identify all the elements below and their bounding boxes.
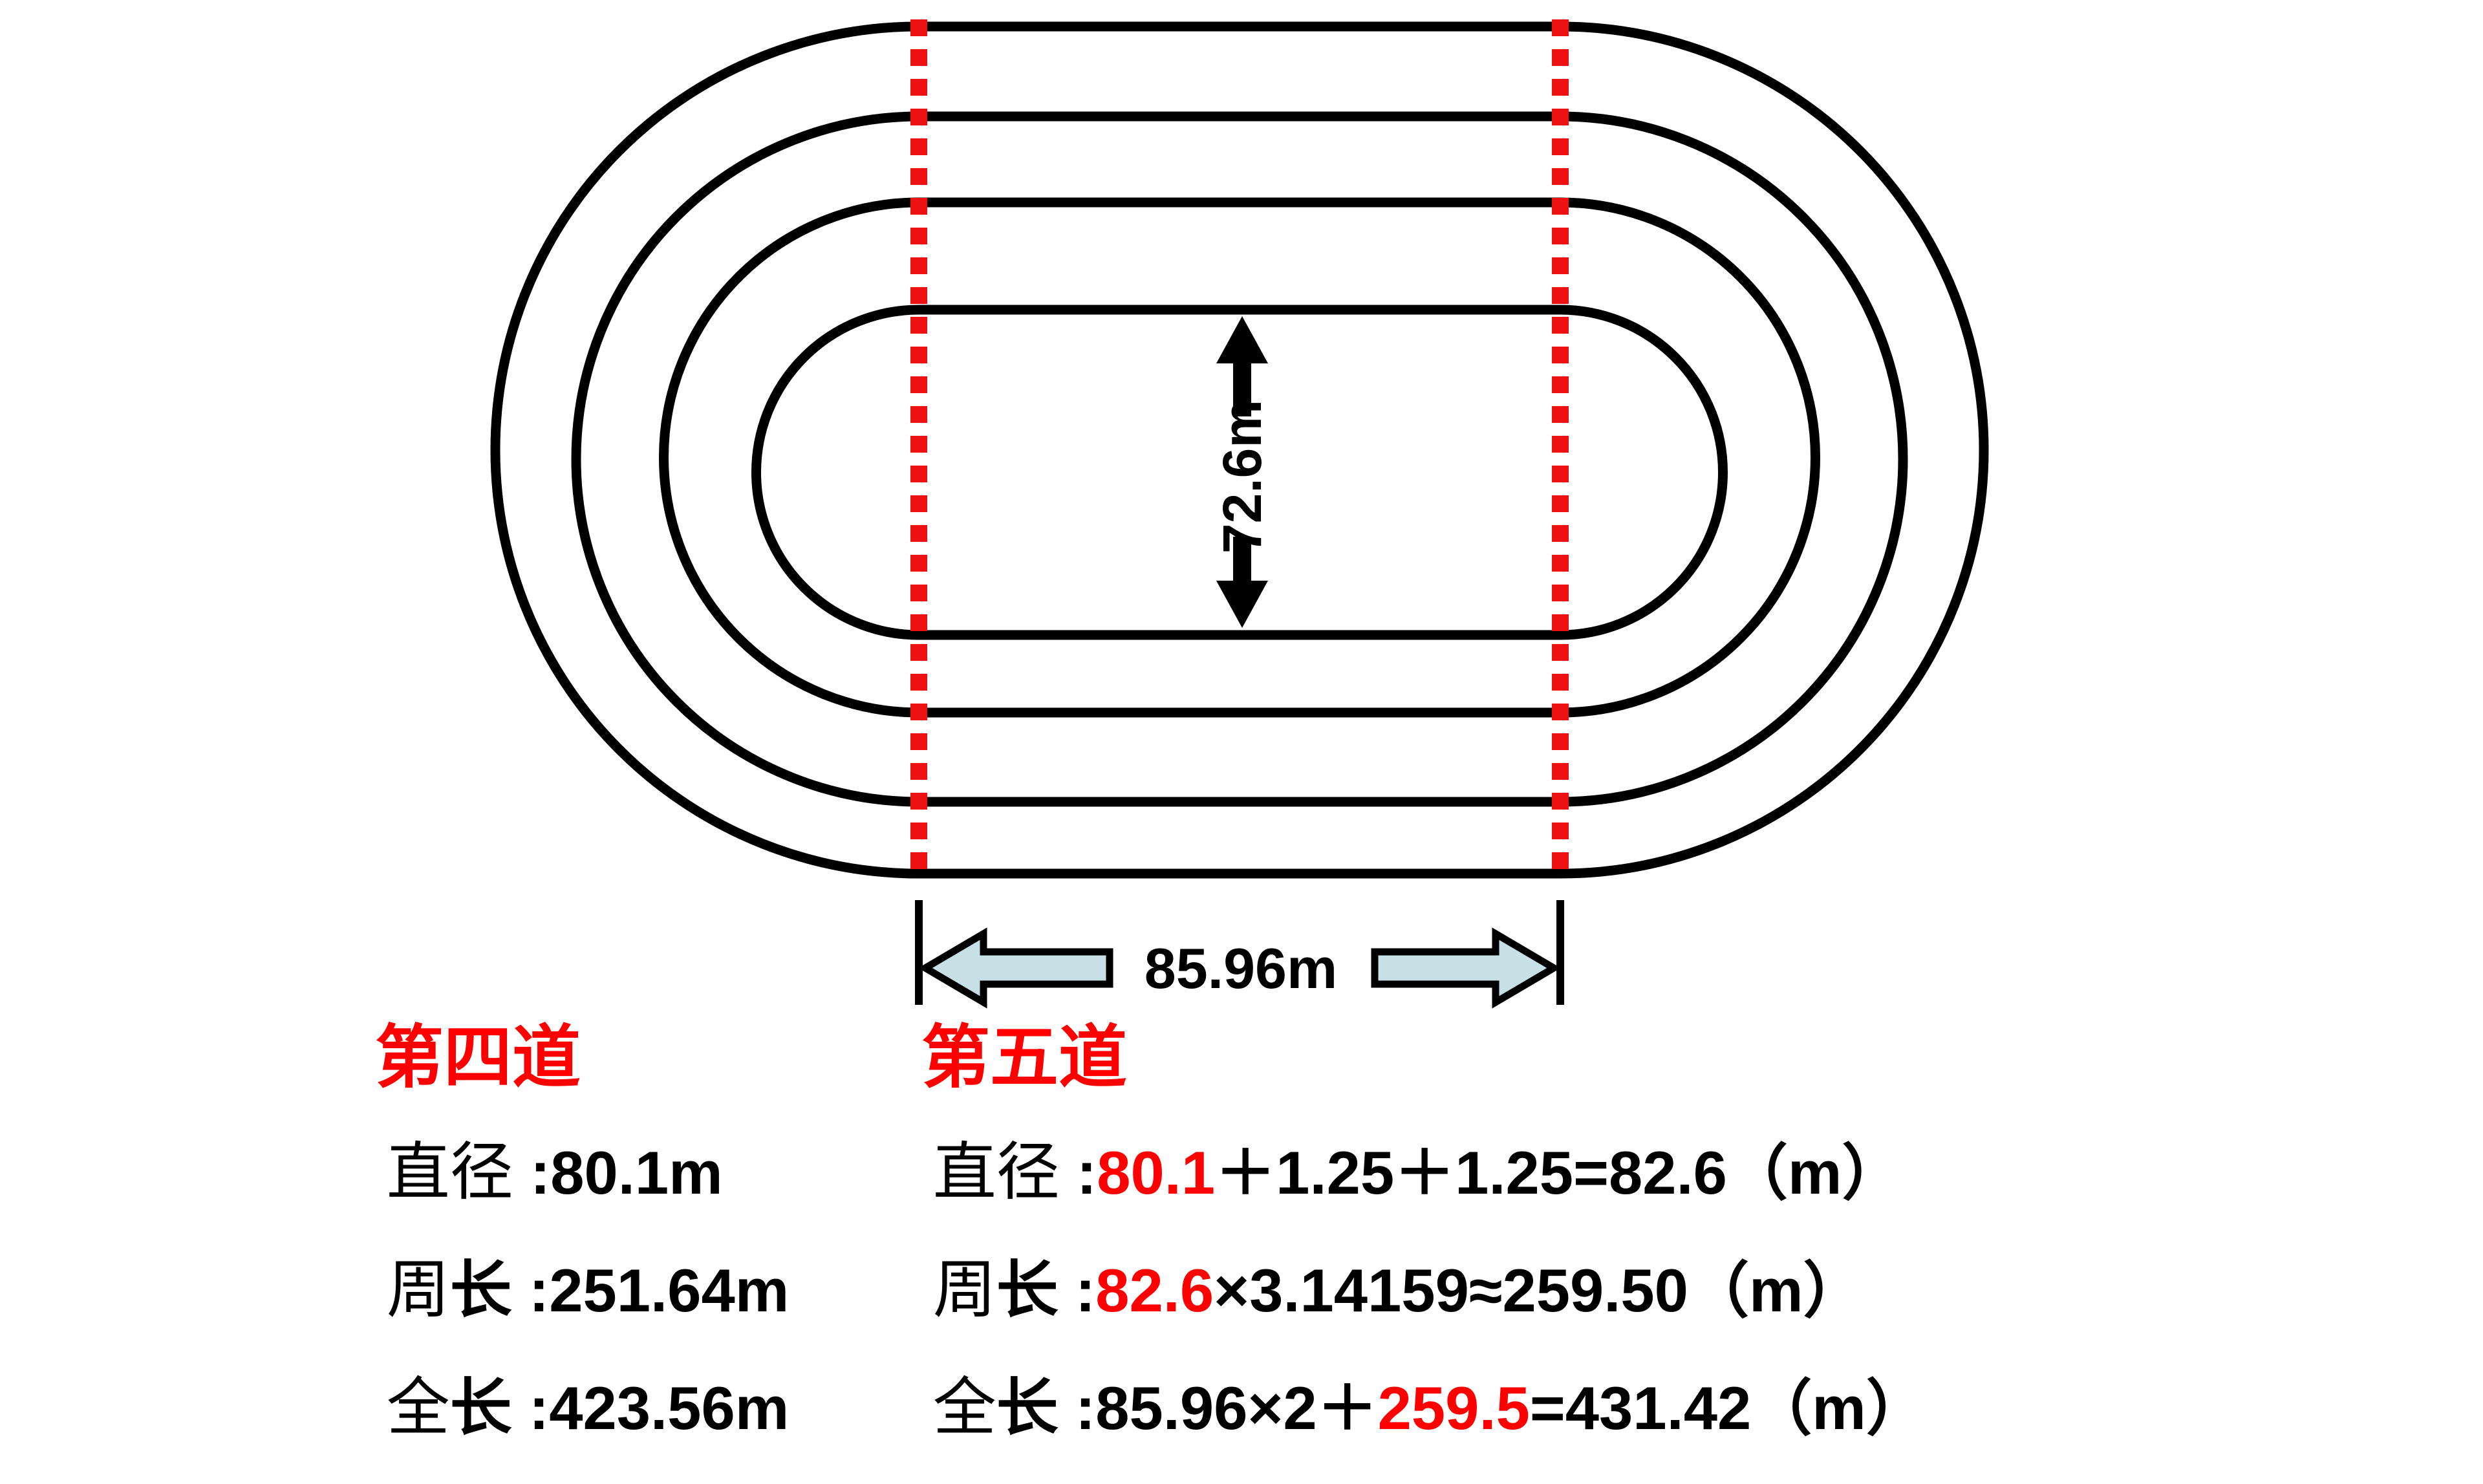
- lane5-diameter-after: ＋1.25＋1.25=82.6（m）: [1215, 1139, 1902, 1207]
- lane5-circumference-colon: :: [1059, 1256, 1095, 1324]
- lane4-total-label: 全: [387, 1373, 450, 1443]
- lane4-diameter-colon: :: [513, 1139, 550, 1207]
- lane5-total-label: 全: [933, 1373, 996, 1443]
- lane5-total-row: 全长 :85.96×2＋259.5=431.42（m）: [921, 1366, 1927, 1450]
- block-arrow-left: [925, 934, 1110, 1002]
- lane5-total-label-heavy: 长: [996, 1373, 1059, 1443]
- lane4-diameter-row: 直径 :80.1m: [375, 1131, 789, 1215]
- lane4-circumference-label: 周: [387, 1256, 450, 1326]
- lane5-diameter-highlight: 80.1: [1097, 1139, 1215, 1207]
- lane5-title: 第五道: [921, 1020, 1927, 1097]
- lane4-total-label-heavy: 长: [450, 1373, 512, 1443]
- lane5-circumference-label: 周: [933, 1256, 996, 1326]
- lane5-column: 第五道 直径 :80.1＋1.25＋1.25=82.6（m） 周长 :82.6×…: [921, 1020, 1927, 1484]
- lane5-diameter-label: 直径: [933, 1138, 1060, 1208]
- lane4-circumference-label-heavy: 长: [450, 1256, 512, 1325]
- lane4-total-row: 全长 :423.56m: [375, 1366, 789, 1450]
- lane5-circumference-row: 周长 :82.6×3.14159≈259.50（m）: [921, 1249, 1927, 1333]
- lane5-total-before: 85.96×2＋: [1095, 1374, 1377, 1442]
- lane5-diameter-colon: :: [1060, 1139, 1097, 1207]
- lane5-circumference-highlight: 82.6: [1095, 1256, 1214, 1324]
- arrow-down-head: [1216, 581, 1268, 628]
- block-arrow-right: [1375, 934, 1554, 1002]
- lane5-total-colon: :: [1059, 1374, 1095, 1442]
- lane4-diameter-label: 直径: [387, 1138, 513, 1208]
- lane4-circumference-row: 周长 :251.64m: [375, 1249, 789, 1333]
- lane5-total-highlight: 259.5: [1378, 1374, 1530, 1442]
- inner-width-label: 72.6m: [1212, 400, 1273, 554]
- lane5-total-after: =431.42（m）: [1530, 1374, 1927, 1442]
- lane4-circumference-colon: :: [512, 1256, 549, 1324]
- lane5-circumference-label-heavy: 长: [996, 1256, 1059, 1325]
- lane5-diameter-row: 直径 :80.1＋1.25＋1.25=82.6（m）: [921, 1131, 1927, 1215]
- lane4-title: 第四道: [375, 1020, 789, 1097]
- lane5-circumference-after: ×3.14159≈259.50（m）: [1214, 1256, 1864, 1324]
- lane4-diameter-value: 80.1m: [550, 1139, 723, 1207]
- arrow-up-head: [1216, 316, 1268, 363]
- lane4-total-colon: :: [512, 1374, 549, 1442]
- lane4-column: 第四道 直径 :80.1m 周长 :251.64m 全长 :423.56m: [375, 1020, 789, 1484]
- lane4-circumference-value: 251.64m: [549, 1256, 789, 1324]
- straight-length-label: 85.96m: [1145, 936, 1337, 1000]
- lane4-total-value: 423.56m: [549, 1374, 789, 1442]
